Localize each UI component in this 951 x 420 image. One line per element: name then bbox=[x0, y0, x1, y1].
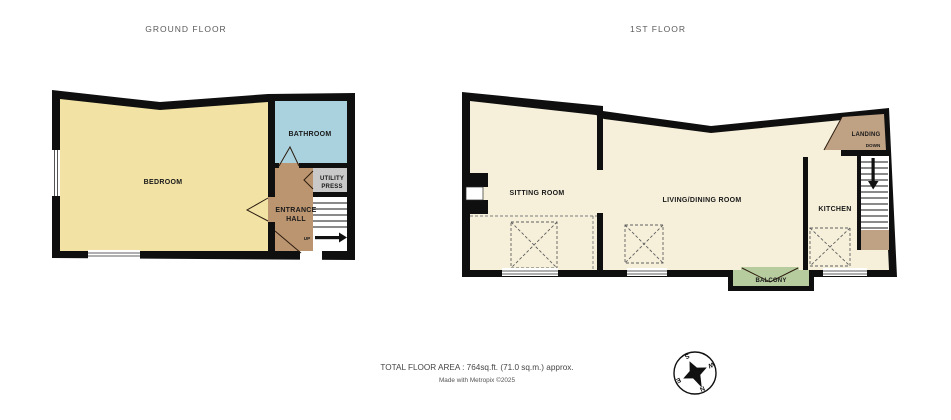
sitting-room-window bbox=[502, 268, 558, 276]
entrance-hall-doorway-floor bbox=[268, 197, 275, 222]
bedroom-window-bottom bbox=[88, 250, 140, 259]
landing-bottom-wall bbox=[841, 150, 890, 156]
ground-floor-title: GROUND FLOOR bbox=[145, 24, 226, 34]
bathroom-door-threshold bbox=[279, 163, 299, 168]
kitchen-label: KITCHEN bbox=[818, 206, 851, 213]
bathroom-wall-right bbox=[299, 163, 347, 168]
first-floor-title: 1ST FLOOR bbox=[630, 24, 686, 34]
ground-floor-plan: GROUND FLOOR bbox=[52, 24, 355, 260]
floorplan-page: GROUND FLOOR bbox=[0, 0, 951, 420]
utility-press-label-line2: PRESS bbox=[321, 184, 342, 190]
kitchen-divider-wall bbox=[803, 157, 808, 272]
sitting-room-label: SITTING ROOM bbox=[510, 190, 565, 197]
floorplan-drawing: GROUND FLOOR bbox=[0, 0, 951, 420]
bedroom-hall-wall-upper bbox=[268, 99, 275, 197]
entrance-hall-label-line2: HALL bbox=[286, 216, 306, 223]
balcony-label: BALCONY bbox=[755, 278, 786, 284]
sitting-living-wall-upper bbox=[597, 107, 603, 170]
kitchen-window bbox=[823, 268, 867, 276]
stairs-up-label: UP bbox=[304, 236, 310, 241]
total-floor-area-text: TOTAL FLOOR AREA : 764sq.ft. (71.0 sq.m.… bbox=[380, 363, 573, 372]
utility-press-label-line1: UTILITY bbox=[320, 176, 344, 182]
bedroom-label: BEDROOM bbox=[144, 179, 183, 186]
bathroom-label: BATHROOM bbox=[288, 131, 331, 138]
stairs-lower-landing-patch bbox=[861, 230, 889, 250]
ground-stairwell-area bbox=[313, 197, 347, 251]
landing-label: LANDING bbox=[852, 132, 881, 138]
stairs-down-label: DOWN bbox=[866, 143, 881, 148]
utility-bottom-wall bbox=[313, 192, 347, 197]
first-floor-plan: 1ST FLOOR bbox=[462, 24, 897, 291]
living-dining-room-label: LIVING/DINING ROOM bbox=[663, 197, 742, 204]
sitting-living-wall-lower bbox=[597, 213, 603, 272]
bedroom-window-left bbox=[52, 150, 60, 196]
metropix-credit-text: Made with Metropix ©2025 bbox=[439, 376, 516, 384]
bedroom-hall-wall-lower bbox=[268, 222, 275, 251]
living-room-window bbox=[627, 268, 667, 276]
first-stairs-left-wall bbox=[857, 156, 861, 250]
compass-rose: N E S W bbox=[667, 344, 723, 401]
bathroom-wall-left-stub bbox=[275, 163, 279, 168]
entrance-hall-label-line1: ENTRANCE bbox=[275, 207, 316, 214]
